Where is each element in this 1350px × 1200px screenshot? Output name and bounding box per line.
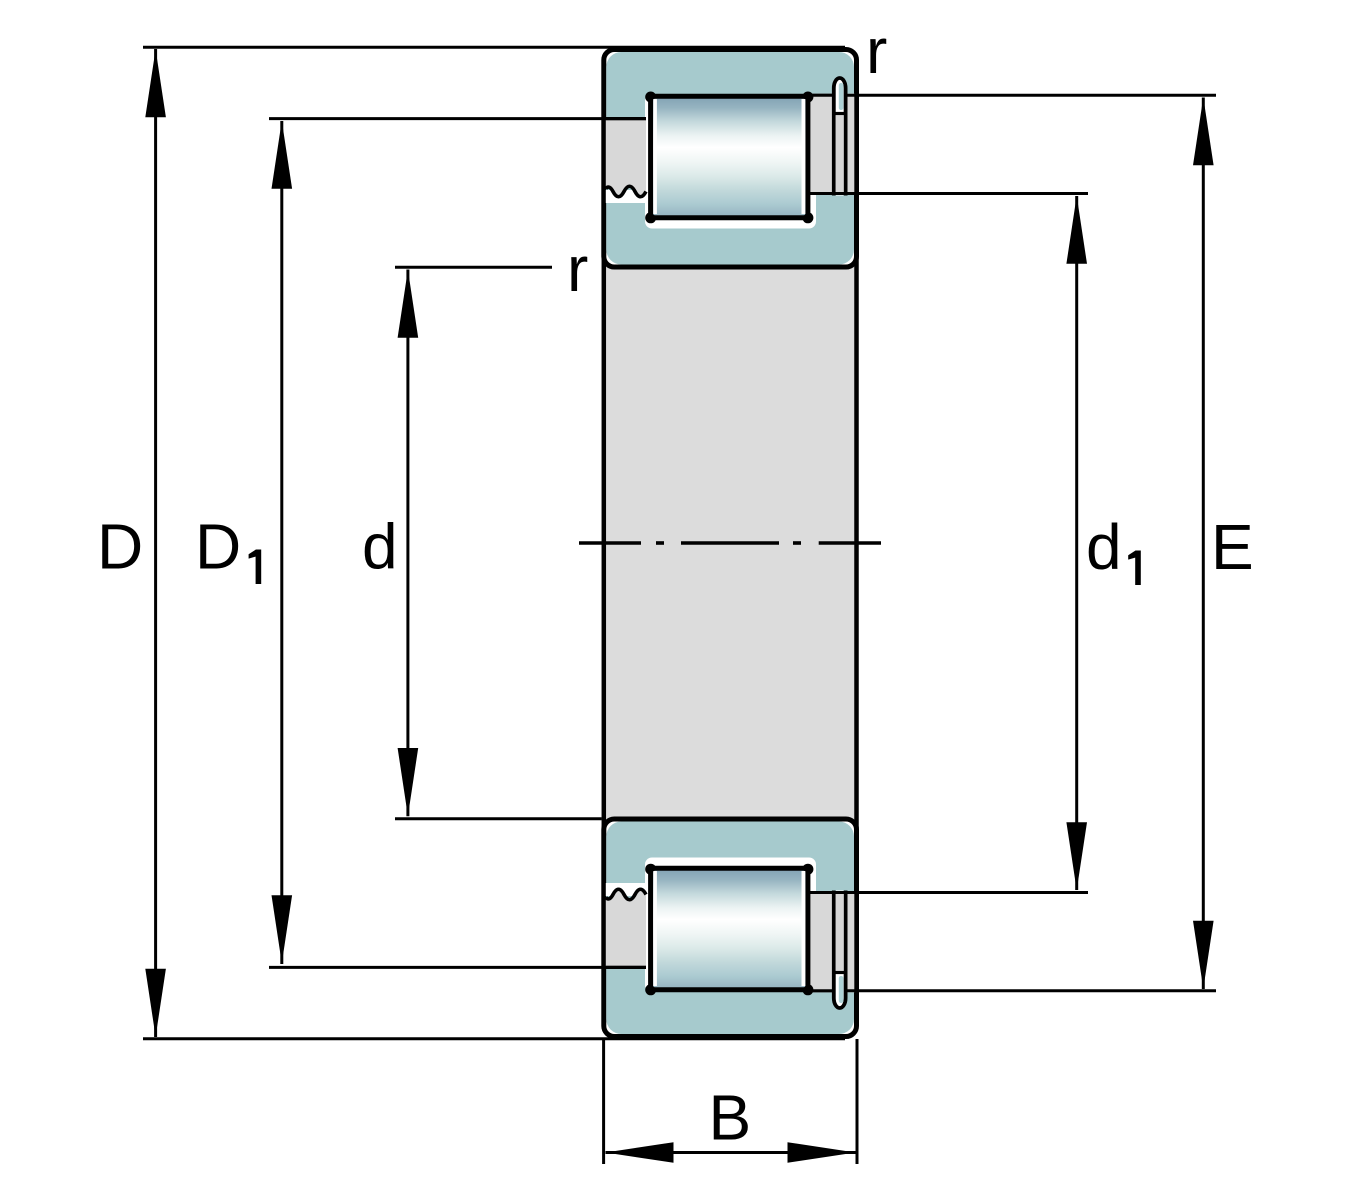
svg-text:B: B <box>709 1082 752 1154</box>
svg-text:D: D <box>97 511 143 583</box>
svg-text:E: E <box>1211 511 1254 583</box>
svg-text:d: d <box>362 511 398 583</box>
svg-text:r: r <box>866 15 887 87</box>
svg-text:r: r <box>567 233 588 305</box>
svg-text:D: D <box>195 511 241 583</box>
svg-text:d: d <box>1086 511 1122 583</box>
